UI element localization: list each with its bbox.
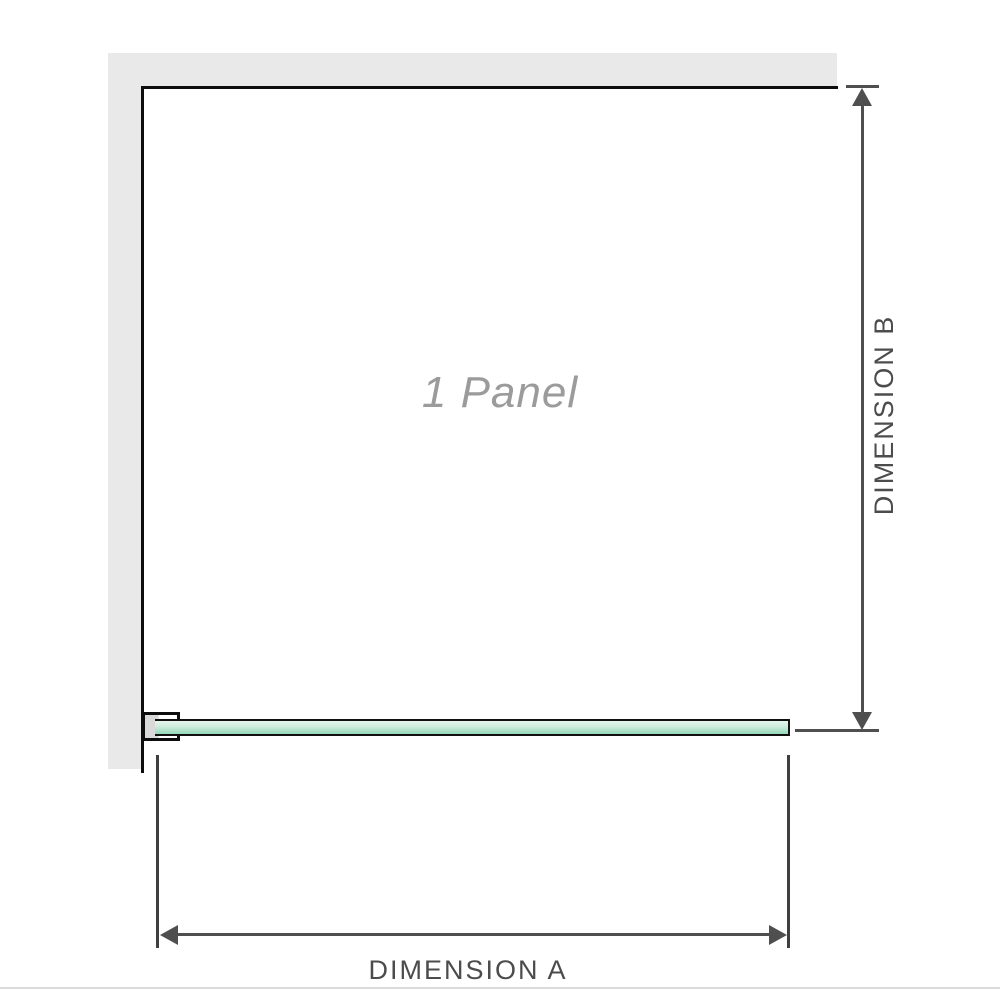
wall-left (108, 53, 144, 769)
arrow-left-icon (160, 925, 178, 945)
dimension-a-label: DIMENSION A (268, 955, 668, 986)
arrow-up-icon (852, 88, 872, 106)
enclosure-edge-left (141, 86, 144, 773)
wall-top (108, 53, 837, 87)
arrow-down-icon (852, 712, 872, 730)
extension-line-right (787, 755, 790, 948)
panel-count-label: 1 Panel (295, 368, 705, 418)
glass-panel (155, 719, 790, 736)
dimension-b-label: DIMENSION B (867, 265, 901, 565)
enclosure-edge-top (141, 86, 838, 89)
extension-line-left (156, 755, 159, 948)
dimension-b-line (861, 92, 864, 716)
shower-panel-dimension-diagram: 1 Panel DIMENSION B DIMENSION A (0, 0, 1000, 1000)
arrow-right-icon (769, 925, 787, 945)
dimension-a-line (175, 933, 771, 936)
bottom-divider (0, 987, 1000, 989)
